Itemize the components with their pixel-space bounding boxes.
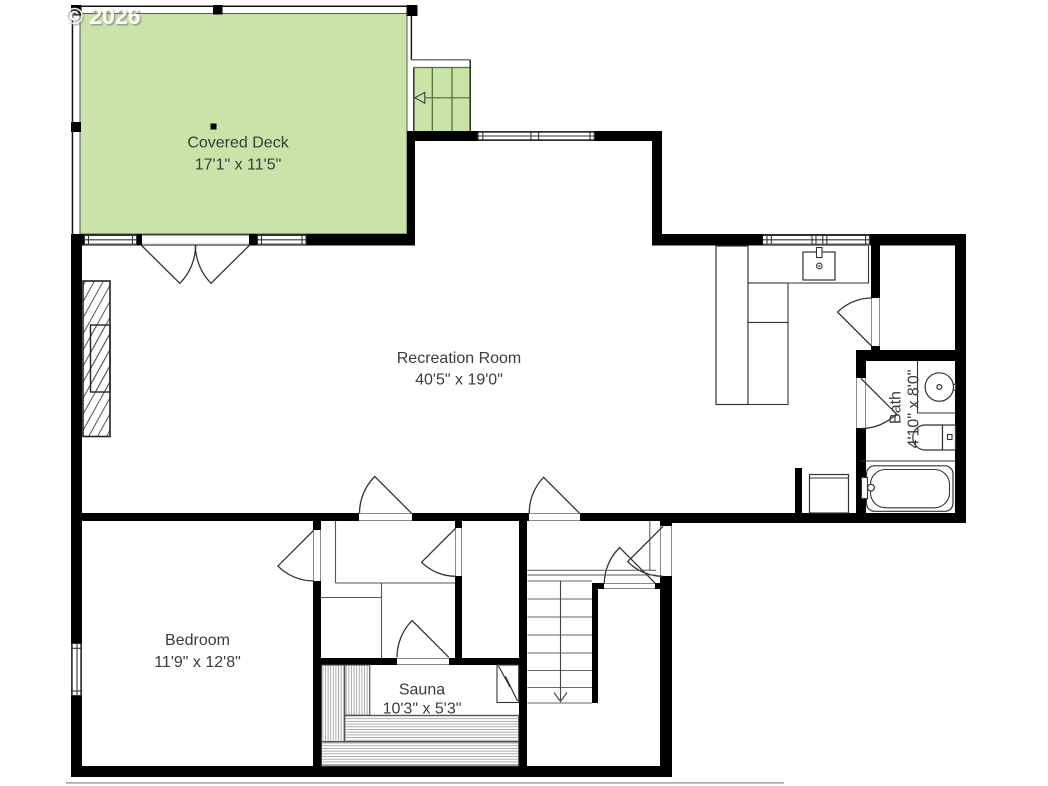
svg-text:10'3" x 5'3": 10'3" x 5'3" xyxy=(383,701,462,718)
svg-text:Bedroom: Bedroom xyxy=(165,632,230,649)
svg-text:4'10" x 8'0": 4'10" x 8'0" xyxy=(906,370,923,449)
svg-text:40'5" x 19'0": 40'5" x 19'0" xyxy=(415,372,503,389)
svg-text:17'1" x 11'5": 17'1" x 11'5" xyxy=(195,157,282,174)
svg-text:Sauna: Sauna xyxy=(399,682,445,699)
svg-text:Covered Deck: Covered Deck xyxy=(187,135,289,152)
svg-text:Bath: Bath xyxy=(888,391,905,424)
svg-text:Recreation Room: Recreation Room xyxy=(397,350,522,367)
svg-text:11'9" x 12'8": 11'9" x 12'8" xyxy=(154,654,241,671)
svg-text:© 2026: © 2026 xyxy=(66,3,141,29)
